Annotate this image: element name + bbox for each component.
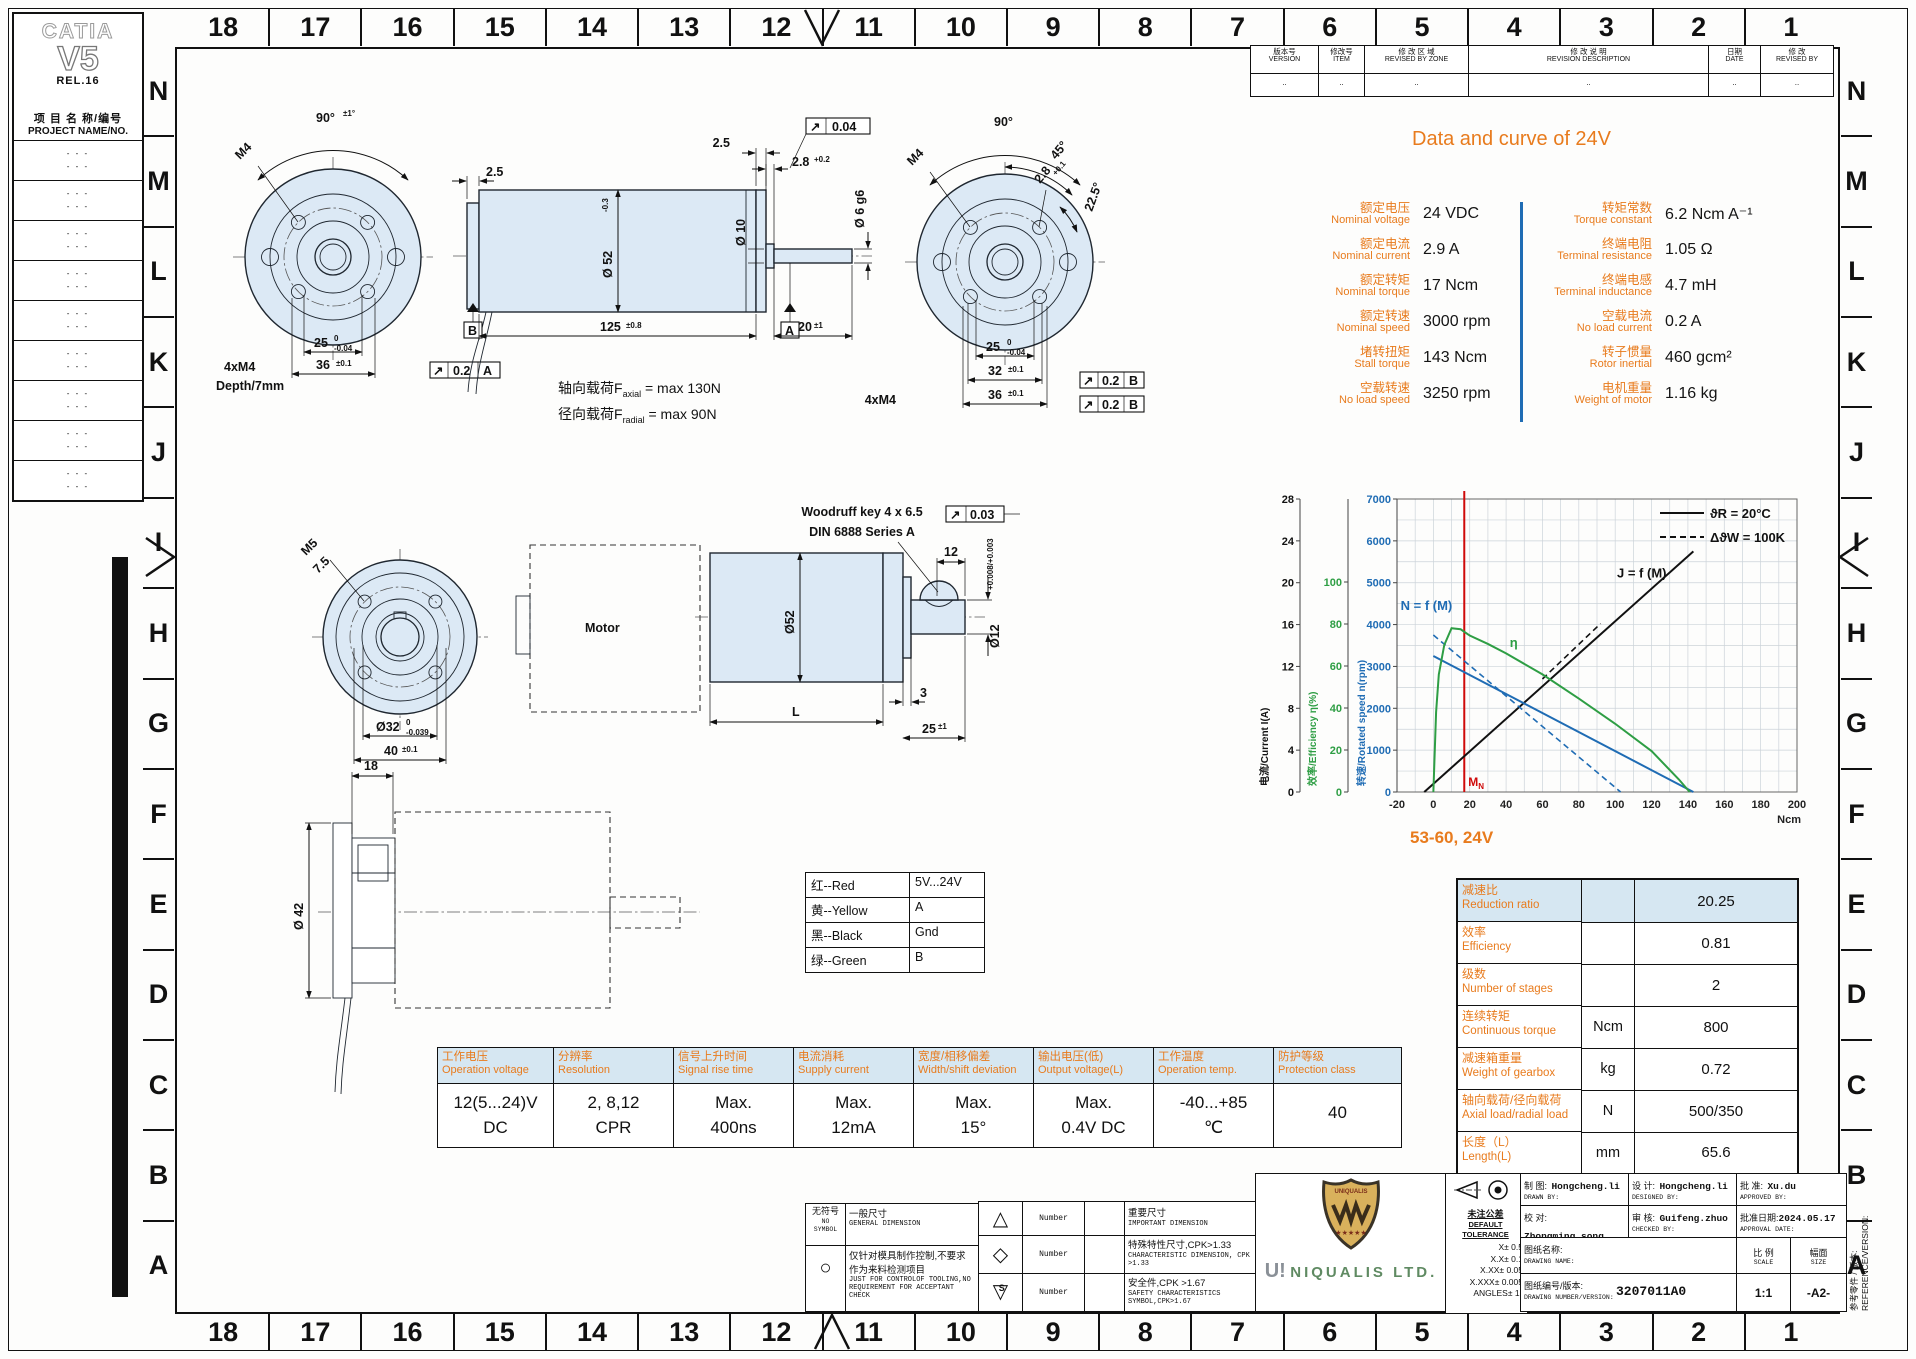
- chart-series: J = f (M)N = f (M)η: [1401, 551, 1694, 792]
- performance-curve-chart: -20020406080100120140160180200Ncm0481216…: [1252, 487, 1827, 867]
- encoder-value: Max.0.4V DC: [1034, 1084, 1154, 1147]
- svg-text:28: 28: [1282, 494, 1294, 506]
- encoder-header: 宽度/相移偏差Width/shift deviation: [914, 1048, 1034, 1084]
- revision-header-en: VERSION: [1251, 56, 1318, 65]
- grid-columns-bottom: 181716151413121110987654321: [178, 1314, 1836, 1351]
- project-row: - - - - - -: [14, 181, 142, 221]
- symbol-desc: 特殊特性尺寸,CPK>1.33CHARACTERISTIC DIMENSION,…: [1125, 1236, 1256, 1274]
- grid-col-label: 4: [1467, 1314, 1559, 1351]
- drawing-number-value: 3207011A0: [1616, 1284, 1686, 1299]
- gearbox-label: 效率Efficiency: [1458, 922, 1582, 964]
- spec-label-cn: 额定电压: [1282, 202, 1410, 215]
- svg-text:5000: 5000: [1367, 578, 1391, 590]
- revision-header-cn: 修 改 区 域: [1365, 47, 1468, 56]
- project-row: - - - - - -: [14, 221, 142, 261]
- grid-row-label: K: [143, 316, 174, 406]
- spec-value: 17 Ncm: [1410, 268, 1520, 304]
- grid-col-label: 15: [453, 1314, 545, 1351]
- grid-row-label: A: [143, 1220, 174, 1310]
- grid-col-label: 14: [545, 9, 637, 46]
- tolerance-title-en: DEFAULT TOLERANCE: [1448, 1220, 1523, 1240]
- svg-text:60: 60: [1536, 799, 1548, 811]
- spec-label-cn: 空载转速: [1282, 382, 1410, 395]
- spec-value: 4.7 mH: [1652, 268, 1820, 304]
- gearbox-value: 500/350: [1635, 1090, 1797, 1133]
- symbol-number: Number: [1023, 1236, 1085, 1274]
- wire-color: 绿--Green: [806, 948, 910, 972]
- tolerance-line: X.XX± 0.05: [1448, 1265, 1523, 1276]
- project-row: - - - - - -: [14, 381, 142, 421]
- spec-label: 转矩常数Torque constant: [1520, 196, 1652, 232]
- default-tolerance-cell: 未注公差 DEFAULT TOLERANCE X± 0.5 X.X± 0.1 X…: [1445, 1205, 1528, 1314]
- svg-text:η: η: [1510, 635, 1518, 650]
- svg-text:3000: 3000: [1367, 661, 1391, 673]
- grid-row-label: J: [143, 406, 174, 496]
- spec-label-en: No load current: [1520, 323, 1652, 335]
- encoder-value: 2, 8,12CPR: [554, 1084, 674, 1147]
- svg-text:ΔϑW = 100K: ΔϑW = 100K: [1710, 530, 1786, 545]
- revision-value: ..: [1365, 74, 1469, 96]
- svg-text:效率/Efficiency η(%): 效率/Efficiency η(%): [1306, 692, 1319, 786]
- spec-label-en: Terminal inductance: [1520, 287, 1652, 299]
- wire-signal: Gnd: [910, 923, 984, 948]
- encoder-value: 40: [1274, 1084, 1401, 1147]
- symbol-cell: 无符号NO SYMBOL: [806, 1204, 846, 1246]
- symbol-number: Number: [1023, 1274, 1085, 1311]
- grid-row-label: F: [1841, 768, 1872, 858]
- title-block: 制 图: Hongcheng.liDRAWN BY: 设 计: Hongchen…: [1520, 1173, 1847, 1312]
- gearbox-unit: [1582, 880, 1635, 923]
- grid-col-label: 13: [637, 9, 729, 46]
- revision-value: ..: [1469, 74, 1709, 96]
- grid-col-label: 7: [1190, 1314, 1282, 1351]
- svg-text:转速/Rotated speed n(rpm): 转速/Rotated speed n(rpm): [1355, 660, 1368, 786]
- wire-color: 红--Red: [806, 873, 910, 898]
- encoder-value: Max.15°: [914, 1084, 1034, 1147]
- chart-legend: ϑR = 20°CΔϑW = 100K: [1660, 506, 1786, 545]
- svg-text:120: 120: [1642, 799, 1660, 811]
- motor-spec-list: 额定电压Nominal voltage 24 VDC 转矩常数Torque co…: [1282, 196, 1820, 412]
- revision-value: ..: [1319, 74, 1365, 96]
- spec-label-en: Nominal torque: [1282, 287, 1410, 299]
- grid-row-label: H: [143, 587, 174, 677]
- grid-row-label: M: [1841, 135, 1872, 225]
- svg-text:100: 100: [1324, 577, 1342, 589]
- gearbox-unit: kg: [1582, 1048, 1635, 1091]
- svg-text:40: 40: [1500, 799, 1512, 811]
- checked-by-cell: 审 核: Guifeng.zhuoCHECKED BY:: [1629, 1206, 1737, 1238]
- grid-col-label: 3: [1559, 9, 1651, 46]
- spec-label: 空载电流No load current: [1520, 304, 1652, 340]
- grid-col-label: 1: [1744, 9, 1836, 46]
- revision-header-en: REVISED BY ZONE: [1365, 56, 1468, 65]
- drawing-number-cell: 图纸编号/版本:DRAWING NUMBER/VERSION:3207011A0: [1521, 1274, 1737, 1311]
- encoder-value: Max.12mA: [794, 1084, 914, 1147]
- gearbox-unit: Ncm: [1582, 1006, 1635, 1049]
- project-header: 项 目 名 称/编号 PROJECT NAME/NO.: [14, 110, 142, 141]
- circle-symbol-icon: ○: [806, 1246, 846, 1311]
- revision-header-en: REVISED BY: [1761, 56, 1833, 65]
- encoder-header: 防护等级Protection class: [1274, 1048, 1401, 1084]
- size-value-cell: -A2-: [1791, 1274, 1846, 1311]
- gearbox-label: 级数Number of stages: [1458, 964, 1582, 1006]
- grid-columns-top: 181716151413121110987654321: [178, 9, 1836, 46]
- designed-by-cell: 设 计: Hongcheng.liDESIGNED BY:: [1629, 1174, 1737, 1206]
- svg-text:J = f (M): J = f (M): [1617, 565, 1666, 580]
- grid-col-label: 12: [729, 9, 821, 46]
- symbol-desc: 仅针对模具制作控制,不要求 作为来料检测项目JUST FOR CONTROLOF…: [846, 1246, 979, 1311]
- spec-label: 终端电感Terminal inductance: [1520, 268, 1652, 304]
- grid-row-label: E: [143, 858, 174, 948]
- spec-label-cn: 额定转矩: [1282, 274, 1410, 287]
- encoder-header: 电流消耗Supply current: [794, 1048, 914, 1084]
- grid-col-label: 16: [360, 9, 452, 46]
- spec-value: 1.05 Ω: [1652, 232, 1820, 268]
- gearbox-label: 减速箱重量Weight of gearbox: [1458, 1048, 1582, 1090]
- revision-header: 版本号VERSION: [1251, 46, 1319, 74]
- svg-text:N = f (M): N = f (M): [1401, 598, 1453, 613]
- gearbox-unit: N: [1582, 1090, 1635, 1133]
- grid-col-label: 17: [268, 9, 360, 46]
- tolerance-line: X± 0.5: [1448, 1242, 1523, 1253]
- gearbox-label: 连续转矩Continuous torque: [1458, 1006, 1582, 1048]
- revision-header: 修 改 区 域REVISED BY ZONE: [1365, 46, 1469, 74]
- revision-header-cn: 版本号: [1251, 47, 1318, 56]
- revision-header-cn: 修 改: [1761, 47, 1833, 56]
- grid-row-label: F: [143, 768, 174, 858]
- revision-value: ..: [1761, 74, 1833, 96]
- spec-label-cn: 堵转扭矩: [1282, 346, 1410, 359]
- svg-text:4: 4: [1288, 745, 1295, 757]
- svg-text:MN: MN: [1468, 775, 1484, 791]
- svg-text:8: 8: [1288, 703, 1294, 715]
- grid-col-label: 17: [268, 1314, 360, 1351]
- wire-color: 黄--Yellow: [806, 898, 910, 923]
- grid-col-label: 11: [822, 9, 914, 46]
- data-curve-title: Data and curve of 24V: [1412, 128, 1611, 151]
- svg-text:0: 0: [1385, 787, 1391, 799]
- svg-text:80: 80: [1330, 619, 1342, 631]
- safety-symbol-icon: S▽: [979, 1274, 1023, 1311]
- grid-row-label: I: [1841, 497, 1872, 587]
- revision-header: 修 改 说 明REVISION DESCRIPTION: [1469, 46, 1709, 74]
- project-row: - - - - - -: [14, 301, 142, 341]
- spec-value: 0.2 A: [1652, 304, 1820, 340]
- diamond-symbol-icon: ◇: [979, 1236, 1023, 1274]
- catia-version: V5: [14, 44, 142, 75]
- svg-text:160: 160: [1715, 799, 1733, 811]
- drawing-sheet: 90° ±1° M4 25 0 -0.04 36 ±0.1 4xM4 Depth…: [0, 0, 1916, 1359]
- grid-rows-left: NMLKJIHGFEDCBA: [143, 47, 174, 1310]
- grid-col-label: 14: [545, 1314, 637, 1351]
- grid-col-label: 2: [1652, 9, 1744, 46]
- grid-row-label: N: [143, 47, 174, 135]
- spec-label-cn: 额定电流: [1282, 238, 1410, 251]
- grid-col-label: 16: [360, 1314, 452, 1351]
- grid-col-label: 4: [1467, 9, 1559, 46]
- symbol-spare: [1085, 1202, 1125, 1236]
- spec-label: 堵转扭矩Stall torque: [1282, 340, 1410, 376]
- wire-signal: A: [910, 898, 984, 923]
- revision-header-cn: 修改号: [1319, 47, 1364, 56]
- spec-label-cn: 终端电感: [1520, 274, 1652, 287]
- svg-text:40: 40: [1330, 703, 1342, 715]
- spec-label-cn: 转子惯量: [1520, 346, 1652, 359]
- svg-text:16: 16: [1282, 620, 1294, 632]
- grid-row-label: K: [1841, 316, 1872, 406]
- tolerance-title-cn: 未注公差: [1448, 1208, 1523, 1220]
- spec-label-en: Rotor inertial: [1520, 359, 1652, 371]
- project-row: - - - - - -: [14, 341, 142, 381]
- symbol-table-right: △ Number 重要尺寸IMPORTANT DIMENSION ◇ Numbe…: [978, 1201, 1257, 1312]
- grid-col-label: 9: [1006, 9, 1098, 46]
- grid-col-label: 18: [178, 1314, 268, 1351]
- encoder-header: 信号上升时间Signal rise time: [674, 1048, 794, 1084]
- spec-value: 2.9 A: [1410, 232, 1520, 268]
- svg-text:53-60, 24V: 53-60, 24V: [1410, 828, 1494, 847]
- spec-label-cn: 额定转速: [1282, 310, 1410, 323]
- grid-row-label: B: [143, 1129, 174, 1219]
- svg-text:180: 180: [1751, 799, 1769, 811]
- revision-value: ..: [1709, 74, 1761, 96]
- grid-col-label: 5: [1375, 1314, 1467, 1351]
- revision-header-cn: 日期: [1709, 47, 1760, 56]
- grid-row-label: I: [143, 497, 174, 587]
- revision-header: 日期DATE: [1709, 46, 1761, 74]
- svg-text:12: 12: [1282, 661, 1294, 673]
- spec-value: 3250 rpm: [1410, 376, 1520, 412]
- svg-text:ϑR = 20°C: ϑR = 20°C: [1710, 506, 1771, 521]
- spec-value: 6.2 Ncm A⁻¹: [1652, 196, 1820, 232]
- svg-text:1000: 1000: [1367, 745, 1391, 757]
- revision-header-en: REVISION DESCRIPTION: [1469, 56, 1708, 65]
- spec-label-en: Nominal speed: [1282, 323, 1410, 335]
- spec-label: 终端电阻Terminal resistance: [1520, 232, 1652, 268]
- grid-row-label: E: [1841, 858, 1872, 948]
- grid-col-label: 10: [914, 9, 1006, 46]
- spec-label-en: Nominal voltage: [1282, 215, 1410, 227]
- project-row: - - - - - -: [14, 141, 142, 181]
- svg-text:电流/Current I(A): 电流/Current I(A): [1258, 708, 1271, 786]
- svg-text:6000: 6000: [1367, 536, 1391, 548]
- spec-label-cn: 转矩常数: [1520, 202, 1652, 215]
- encoder-value: Max.400ns: [674, 1084, 794, 1147]
- approval-date-cell: 批准日期:2024.05.17APPROVAL DATE:: [1737, 1206, 1846, 1238]
- project-header-cn: 项 目 名 称/编号: [16, 113, 140, 126]
- gearbox-unit: [1582, 964, 1635, 1007]
- grid-col-label: 18: [178, 9, 268, 46]
- spec-label: 转子惯量Rotor inertial: [1520, 340, 1652, 376]
- grid-row-label: N: [1841, 47, 1872, 135]
- grid-col-label: 6: [1283, 1314, 1375, 1351]
- svg-text:2000: 2000: [1367, 703, 1391, 715]
- encoder-spec-table: 工作电压Operation voltage 分辨率Resolution 信号上升…: [437, 1047, 1402, 1148]
- grid-col-label: 10: [914, 1314, 1006, 1351]
- triangle-symbol-icon: △: [979, 1202, 1023, 1236]
- gearbox-value: 2: [1635, 964, 1797, 1007]
- reference-cn: 参考零件 / 版本:: [1849, 951, 1860, 1311]
- spec-label: 电机重量Weight of motor: [1520, 376, 1652, 412]
- catia-release: REL.16: [14, 75, 142, 87]
- revision-table: 版本号VERSION 修改号ITEM 修 改 区 域REVISED BY ZON…: [1250, 45, 1834, 97]
- spec-label: 额定电压Nominal voltage: [1282, 196, 1410, 232]
- grid-col-label: 15: [453, 9, 545, 46]
- svg-text:24: 24: [1282, 536, 1295, 548]
- grid-col-label: 11: [822, 1314, 914, 1351]
- project-row: - - - - - -: [14, 261, 142, 301]
- catia-logo-block: CATIA V5 REL.16: [12, 12, 144, 112]
- symbol-table-left: 无符号NO SYMBOL 一般尺寸GENERAL DIMENSION ○ 仅针对…: [805, 1203, 980, 1312]
- grid-col-label: 8: [1098, 9, 1190, 46]
- grid-col-label: 3: [1559, 1314, 1651, 1351]
- gearbox-label: 长度（L）Length(L): [1458, 1132, 1582, 1173]
- company-name-text: NIQUALIS LTD.: [1290, 1264, 1437, 1281]
- spec-value: 1.16 kg: [1652, 376, 1820, 412]
- svg-text:140: 140: [1679, 799, 1697, 811]
- spec-label-en: No load speed: [1282, 395, 1410, 407]
- scale-value-cell: 1:1: [1737, 1274, 1791, 1311]
- spec-label: 空载转速No load speed: [1282, 376, 1410, 412]
- grid-row-label: H: [1841, 587, 1872, 677]
- encoder-header: 分辨率Resolution: [554, 1048, 674, 1084]
- spec-label-cn: 电机重量: [1520, 382, 1652, 395]
- drawn-by-cell: 制 图: Hongcheng.liDRAWN BY:: [1521, 1174, 1629, 1206]
- wire-color: 黑--Black: [806, 923, 910, 948]
- symbol-desc: 一般尺寸GENERAL DIMENSION: [846, 1204, 979, 1246]
- grid-row-label: L: [143, 226, 174, 316]
- symbol-spare: [1085, 1236, 1125, 1274]
- grid-row-label: L: [1841, 226, 1872, 316]
- spec-label-cn: 空载电流: [1520, 310, 1652, 323]
- svg-text:200: 200: [1788, 799, 1806, 811]
- symbol-desc: 安全件,CPK >1.67SAFETY CHARACTERISTICS SYMB…: [1125, 1274, 1256, 1311]
- encoder-header: 工作温度Operation temp.: [1154, 1048, 1274, 1084]
- project-row: - - - - - -: [14, 461, 142, 500]
- spec-label-en: Nominal current: [1282, 251, 1410, 263]
- spec-label: 额定电流Nominal current: [1282, 232, 1410, 268]
- gearbox-value: 65.6: [1635, 1132, 1797, 1173]
- svg-text:UNIQUALIS: UNIQUALIS: [1335, 1189, 1368, 1195]
- tolerance-line: X.XXX± 0.005: [1448, 1277, 1523, 1288]
- spec-value: 143 Ncm: [1410, 340, 1520, 376]
- svg-text:60: 60: [1330, 661, 1342, 673]
- approved-by-cell: 批 准: Xu.duAPPROVED BY:: [1737, 1174, 1846, 1206]
- gearbox-value: 20.25: [1635, 880, 1797, 923]
- grid-col-label: 1: [1744, 1314, 1836, 1351]
- grid-row-label: J: [1841, 406, 1872, 496]
- grid-row-label: G: [1841, 678, 1872, 768]
- revision-header: 修 改REVISED BY: [1761, 46, 1833, 74]
- svg-text:20: 20: [1282, 578, 1294, 590]
- grid-row-label: D: [143, 949, 174, 1039]
- svg-text:4000: 4000: [1367, 620, 1391, 632]
- grid-col-label: 9: [1006, 1314, 1098, 1351]
- spec-label-cn: 终端电阻: [1520, 238, 1652, 251]
- spec-label: 额定转速Nominal speed: [1282, 304, 1410, 340]
- svg-text:20: 20: [1330, 745, 1342, 757]
- revision-header-en: ITEM: [1319, 56, 1364, 65]
- gearbox-unit: [1582, 922, 1635, 965]
- spec-label-en: Torque constant: [1520, 215, 1652, 227]
- wire-signal: B: [910, 948, 984, 972]
- load-note: 轴向载荷Faxial = max 130N 径向载荷Fradial = max …: [558, 376, 721, 428]
- reference-version-strip: 参考零件 / 版本: REFERENCE/VERSION:: [1849, 951, 1870, 1311]
- grid-col-label: 8: [1098, 1314, 1190, 1351]
- company-name: U! NIQUALIS LTD.: [1256, 1260, 1446, 1283]
- encoder-value: 12(5...24)VDC: [438, 1084, 554, 1147]
- gearbox-label: 减速比Reduction ratio: [1458, 880, 1582, 922]
- company-mark: U!: [1265, 1260, 1286, 1282]
- projection-symbol-cell: [1445, 1173, 1522, 1207]
- encoder-header: 输出电压(低)Output voltage(L): [1034, 1048, 1154, 1084]
- axial-load-note: 轴向载荷Faxial = max 130N: [558, 376, 721, 402]
- spec-label: 额定转矩Nominal torque: [1282, 268, 1410, 304]
- tolerance-line: X.X± 0.1: [1448, 1254, 1523, 1265]
- project-header-en: PROJECT NAME/NO.: [16, 126, 140, 138]
- spec-value: 3000 rpm: [1410, 304, 1520, 340]
- svg-text:0: 0: [1336, 787, 1342, 799]
- drawing-name-cell: 图纸名称: DRAWING NAME:: [1521, 1238, 1737, 1274]
- svg-text:Ncm: Ncm: [1777, 814, 1801, 826]
- svg-text:0: 0: [1288, 787, 1294, 799]
- encoder-header: 工作电压Operation voltage: [438, 1048, 554, 1084]
- gearbox-value: 0.72: [1635, 1048, 1797, 1091]
- project-row: - - - - - -: [14, 421, 142, 461]
- spec-value: 460 gcm²: [1652, 340, 1820, 376]
- symbol-spare: [1085, 1274, 1125, 1311]
- spec-label-en: Stall torque: [1282, 359, 1410, 371]
- project-rows: - - - - - -- - - - - -- - - - - -- - - -…: [14, 141, 142, 500]
- svg-text:★★★★★: ★★★★★: [1335, 1229, 1366, 1237]
- revision-value: ..: [1251, 74, 1319, 96]
- revision-header-en: DATE: [1709, 56, 1760, 65]
- project-name-block: 项 目 名 称/编号 PROJECT NAME/NO. - - - - - --…: [12, 110, 144, 502]
- radial-load-note: 径向载荷Fradial = max 90N: [558, 402, 721, 428]
- gearbox-unit: mm: [1582, 1132, 1635, 1173]
- wire-color-table: 红--Red5V...24V 黄--YellowA 黑--BlackGnd 绿-…: [805, 872, 985, 973]
- svg-text:80: 80: [1573, 799, 1585, 811]
- svg-text:7000: 7000: [1367, 494, 1391, 506]
- svg-text:-20: -20: [1389, 799, 1405, 811]
- encoder-value: -40...+85℃: [1154, 1084, 1274, 1147]
- gearbox-value: 0.81: [1635, 922, 1797, 965]
- size-header-cell: 幅面SIZE: [1791, 1238, 1846, 1274]
- revision-header-cn: 修 改 说 明: [1469, 47, 1708, 56]
- grid-col-label: 6: [1283, 9, 1375, 46]
- svg-text:0: 0: [1430, 799, 1436, 811]
- gearbox-value: 800: [1635, 1006, 1797, 1049]
- company-shield-icon: UNIQUALIS ★★★★★: [1319, 1177, 1383, 1251]
- spec-label-en: Terminal resistance: [1520, 251, 1652, 263]
- scale-header-cell: 比 例SCALE: [1737, 1238, 1791, 1274]
- svg-text:100: 100: [1606, 799, 1624, 811]
- wire-signal: 5V...24V: [910, 873, 984, 898]
- grid-row-label: C: [143, 1039, 174, 1129]
- grid-col-label: 7: [1190, 9, 1282, 46]
- grid-col-label: 12: [729, 1314, 821, 1351]
- third-angle-projection-icon: [1453, 1178, 1515, 1202]
- svg-text:20: 20: [1464, 799, 1476, 811]
- revision-header: 修改号ITEM: [1319, 46, 1365, 74]
- gearbox-spec-table: 减速比Reduction ratio 20.25 效率Efficiency 0.…: [1456, 878, 1799, 1175]
- spec-label-en: Weight of motor: [1520, 395, 1652, 407]
- grid-col-label: 5: [1375, 9, 1467, 46]
- spec-value: 24 VDC: [1410, 196, 1520, 232]
- gearbox-label: 轴向载荷/径向载荷Axial load/radial load: [1458, 1090, 1582, 1132]
- company-logo-cell: UNIQUALIS ★★★★★ U! NIQUALIS LTD.: [1255, 1173, 1447, 1312]
- collated-by-cell: 校 对: Zhongming.songCOLLATED BY:: [1521, 1206, 1629, 1238]
- grid-col-label: 2: [1652, 1314, 1744, 1351]
